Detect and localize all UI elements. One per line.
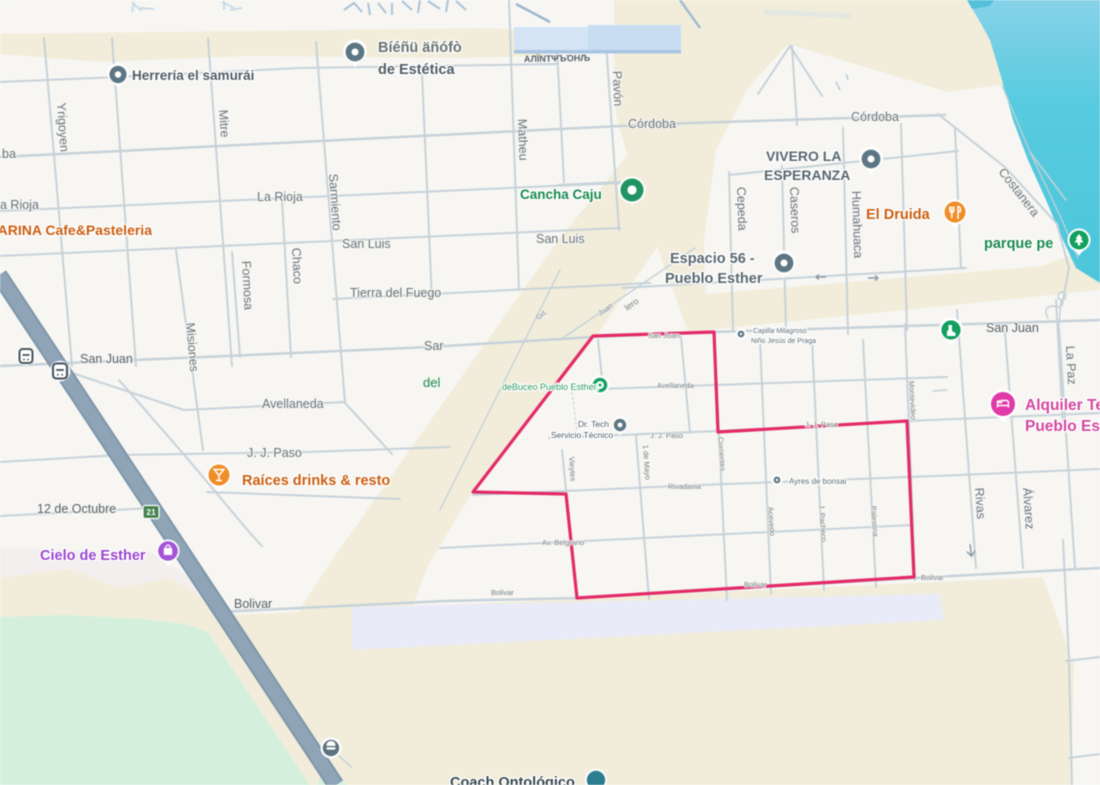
svg-text:San Juan: San Juan (648, 331, 680, 340)
svg-text:J. J. Paso: J. J. Paso (650, 431, 683, 440)
svg-text:MARINA Cafe&Pasteleria: MARINA Cafe&Pasteleria (0, 222, 152, 238)
svg-text:J. J. Paso: J. J. Paso (247, 446, 302, 460)
svg-text:J. J. Paso: J. J. Paso (805, 420, 838, 429)
svg-text:Pavón: Pavón (610, 71, 625, 107)
svg-text:Raíces drinks & resto: Raíces drinks & resto (242, 473, 390, 489)
svg-text:parque pe: parque pe (984, 236, 1053, 252)
svg-text:San Luis: San Luis (536, 232, 585, 246)
svg-text:Bíéñü äñófò: Bíéñü äñófò (378, 40, 462, 56)
svg-text:12 de Octubre: 12 de Octubre (37, 502, 116, 516)
svg-text:San Juan: San Juan (80, 352, 133, 366)
svg-text:La Rioja: La Rioja (257, 190, 303, 204)
svg-text:Sar: Sar (424, 339, 443, 353)
svg-text:de Estética: de Estética (378, 62, 455, 78)
svg-text:Pueblo Esther: Pueblo Esther (665, 271, 763, 287)
svg-text:Rivadavia: Rivadavia (668, 482, 702, 491)
svg-text:Rivas: Rivas (972, 487, 988, 519)
svg-text:АЛЇΝΤΨЪΌΗЉ: АЛЇΝΤΨЪΌΗЉ (524, 53, 591, 64)
svg-text:Capilla Milagroso: Capilla Milagroso (753, 328, 807, 335)
svg-text:Niño Jesús de Praga: Niño Jesús de Praga (751, 338, 816, 345)
svg-text:Servicio Técnico: Servicio Técnico (551, 430, 613, 440)
svg-text:Córdoba: Córdoba (851, 110, 899, 124)
svg-text:San Juan: San Juan (986, 321, 1039, 335)
svg-text:Bolivar: Bolivar (744, 580, 767, 589)
svg-text:Av. Belgrano: Av. Belgrano (542, 538, 584, 547)
svg-text:Córdoba: Córdoba (628, 117, 676, 131)
svg-text:ba: ba (2, 147, 16, 161)
svg-text:Bolivar: Bolivar (921, 573, 944, 582)
svg-text:Ayres de bonsai: Ayres de bonsai (789, 477, 846, 486)
svg-text:Alquiler Te: Alquiler Te (1025, 397, 1100, 414)
svg-text:Cepeda: Cepeda (734, 187, 750, 231)
svg-text:Avellaneda: Avellaneda (262, 397, 324, 411)
svg-text:VIVERO LA: VIVERO LA (766, 148, 841, 164)
svg-text:Matheu: Matheu (515, 119, 530, 161)
svg-text:Pueblo Est: Pueblo Est (1025, 418, 1100, 435)
svg-text:Vieytes: Vieytes (567, 457, 578, 482)
svg-text:del: del (423, 375, 440, 390)
svg-text:Avellaneda: Avellaneda (657, 381, 695, 390)
svg-text:Bolivar: Bolivar (491, 588, 514, 597)
svg-text:Mitre: Mitre (216, 109, 232, 138)
svg-text:Herrería el samurái: Herrería el samurái (132, 68, 254, 83)
svg-text:Cielo de Esther: Cielo de Esther (40, 548, 146, 564)
svg-text:ESPERANZA: ESPERANZA (764, 167, 850, 183)
svg-text:El Druida: El Druida (866, 207, 931, 223)
svg-text:Espacio 56 -: Espacio 56 - (670, 251, 755, 267)
svg-text:Humahuaca: Humahuaca (849, 191, 865, 259)
svg-text:deBuceo Pueblo Esther.: deBuceo Pueblo Esther. (502, 382, 599, 392)
svg-text:a Rioja: a Rioja (0, 198, 39, 212)
svg-text:Cancha Caju: Cancha Caju (520, 187, 602, 202)
svg-text:Dr. Tech: Dr. Tech (578, 419, 609, 429)
svg-text:Caseros: Caseros (787, 187, 803, 234)
svg-text:Bolivar: Bolivar (234, 597, 272, 611)
svg-text:Formosa: Formosa (239, 260, 256, 310)
svg-text:La Paz: La Paz (1063, 345, 1079, 385)
svg-text:Tierra del Fuego: Tierra del Fuego (350, 286, 441, 300)
svg-text:Álvarez: Álvarez (1020, 487, 1038, 530)
svg-text:San Luis: San Luis (342, 237, 391, 251)
svg-text:Chaco: Chaco (289, 247, 305, 284)
svg-text:Coach Ontológico: Coach Ontológico (450, 775, 575, 785)
svg-text:21: 21 (146, 507, 156, 517)
